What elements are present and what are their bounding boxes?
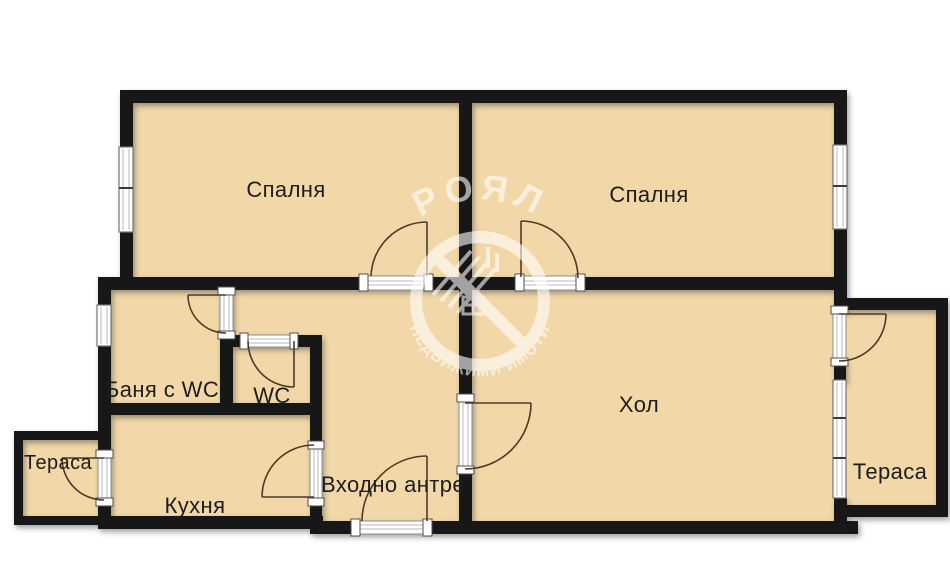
window-living-room-east xyxy=(833,380,846,498)
floor-areas xyxy=(20,96,940,527)
room-label-terrace-right: Тераса xyxy=(853,459,928,484)
wall-terrace-left-bottom xyxy=(14,516,110,525)
wall-window-strip-base xyxy=(834,498,847,534)
wall-terrace-right-bottom xyxy=(846,505,948,517)
wall-top xyxy=(120,90,847,103)
room-label-kitchen: Кухня xyxy=(165,493,226,518)
room-label-bedroom-right: Спалня xyxy=(609,182,688,207)
room-label-bedroom-left: Спалня xyxy=(246,177,325,202)
window-bathroom xyxy=(97,305,111,346)
room-label-bathroom-wc: Баня с WC xyxy=(105,377,219,402)
wall-terrace-right-east xyxy=(936,298,948,517)
room-label-wc: WC xyxy=(253,383,290,408)
floor-terrace-left xyxy=(20,437,104,519)
floor-plan-svg: Спалня Спалня Баня с WC WC Тераса Кухня … xyxy=(0,0,950,563)
room-label-terrace-left: Тераса xyxy=(24,452,92,474)
window-bedroom-left xyxy=(119,147,133,232)
wall-terrace-left-west xyxy=(14,431,23,525)
wall-terrace-right-top xyxy=(834,298,948,310)
floor-plan-page: Спалня Спалня Баня с WC WC Тераса Кухня … xyxy=(0,0,950,563)
wall-terrace-left-top xyxy=(14,431,110,440)
window-bedroom-right xyxy=(833,145,847,229)
room-label-living-room: Хол xyxy=(619,392,659,417)
room-label-entry-hall: Входно антре xyxy=(321,472,465,497)
